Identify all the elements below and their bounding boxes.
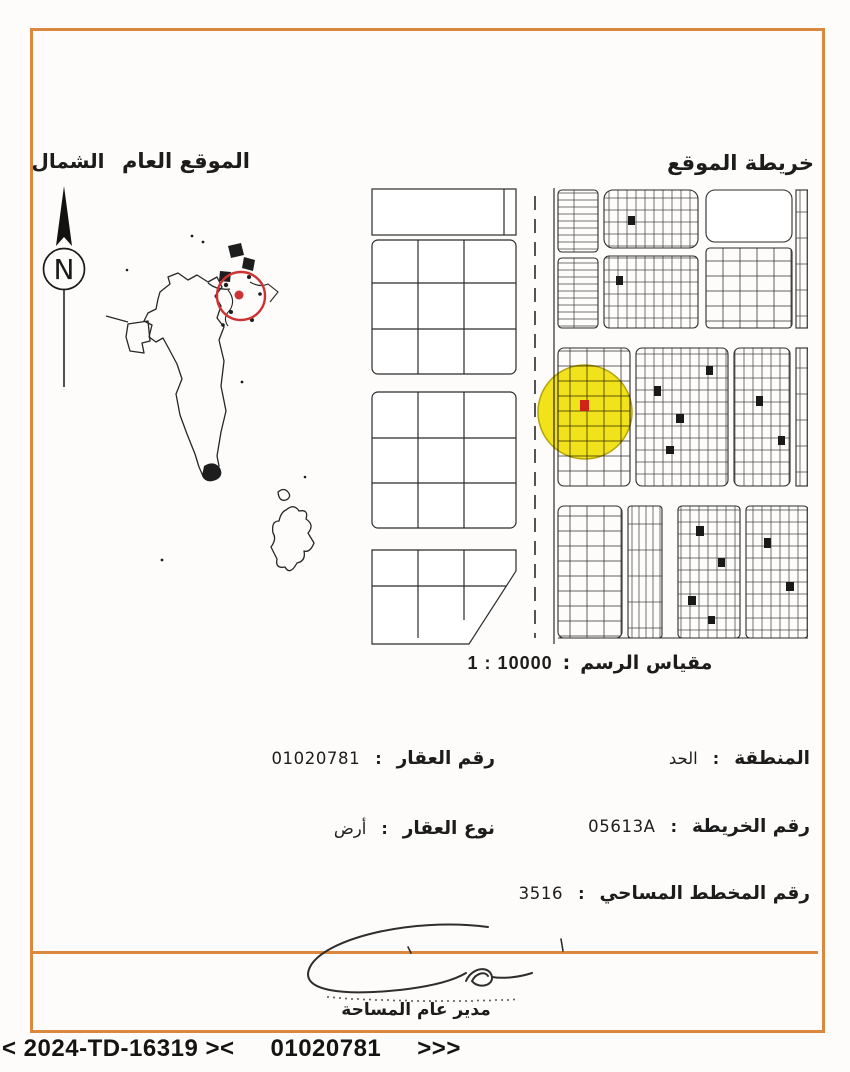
location-indicator-dot — [235, 291, 244, 300]
signature-stroke — [308, 925, 563, 993]
bahrain-urban-blobs — [126, 235, 307, 562]
compass-letter: N — [54, 253, 75, 286]
separator: : — [578, 884, 584, 903]
bahrain-overview-map — [100, 230, 340, 610]
survey-plan-number-row: رقم المخطط المساحي : 3516 — [548, 883, 810, 904]
property-marker — [580, 400, 589, 411]
general-location-title: الموقع العام — [116, 149, 256, 173]
map-number-label: رقم الخريطة — [692, 816, 810, 837]
property-type-label: نوع العقار — [403, 818, 495, 839]
survey-plan-number-value: 3516 — [519, 884, 563, 903]
property-number-value: 01020781 — [271, 749, 360, 768]
area-row: المنطقة : الحد — [548, 748, 810, 769]
scale-label: مقياس الرسم — [580, 652, 712, 674]
map-right-strip-top — [558, 190, 808, 328]
footer-property-number: 01020781 — [271, 1035, 382, 1063]
north-compass-icon: N — [36, 184, 92, 394]
map-scale: 1 : 10000 : مقياس الرسم — [400, 652, 780, 674]
north-label: الشمال — [30, 149, 106, 173]
map-left-blocks — [372, 189, 516, 644]
property-type-row: نوع العقار : أرض — [195, 818, 495, 839]
property-number-row: رقم العقار : 01020781 — [195, 748, 495, 769]
separator: : — [671, 817, 677, 836]
map-number-value: 05613A — [588, 817, 655, 836]
cadastral-location-map — [366, 186, 808, 646]
footer-arrows: >>> — [417, 1035, 461, 1063]
separator: : — [375, 749, 381, 768]
separator: : — [713, 749, 719, 768]
highlight-circle — [538, 365, 632, 459]
north-arrow-icon — [56, 186, 72, 246]
map-number-row: رقم الخريطة : 05613A — [548, 816, 810, 837]
scale-value: 1 : 10000 — [468, 653, 553, 674]
area-value: الحد — [669, 749, 698, 768]
bahrain-outline — [106, 273, 314, 571]
scale-separator: : — [563, 652, 571, 674]
property-type-value: أرض — [334, 819, 367, 838]
signature-title: مدير عام المساحة — [318, 1000, 514, 1020]
footer-reference-code: < 2024-TD-16319 >< — [2, 1035, 235, 1063]
separator: : — [381, 819, 387, 838]
property-number-label: رقم العقار — [397, 748, 495, 769]
survey-certificate-page: الشمال الموقع العام خريطة الموقع N — [0, 0, 850, 1072]
location-map-title: خريطة الموقع — [638, 151, 814, 175]
area-label: المنطقة — [734, 748, 810, 769]
footer-code-line: < 2024-TD-16319 >< 01020781 >>> — [2, 1035, 461, 1063]
survey-plan-number-label: رقم المخطط المساحي — [599, 883, 810, 904]
map-right-strip-bottom — [558, 506, 808, 638]
